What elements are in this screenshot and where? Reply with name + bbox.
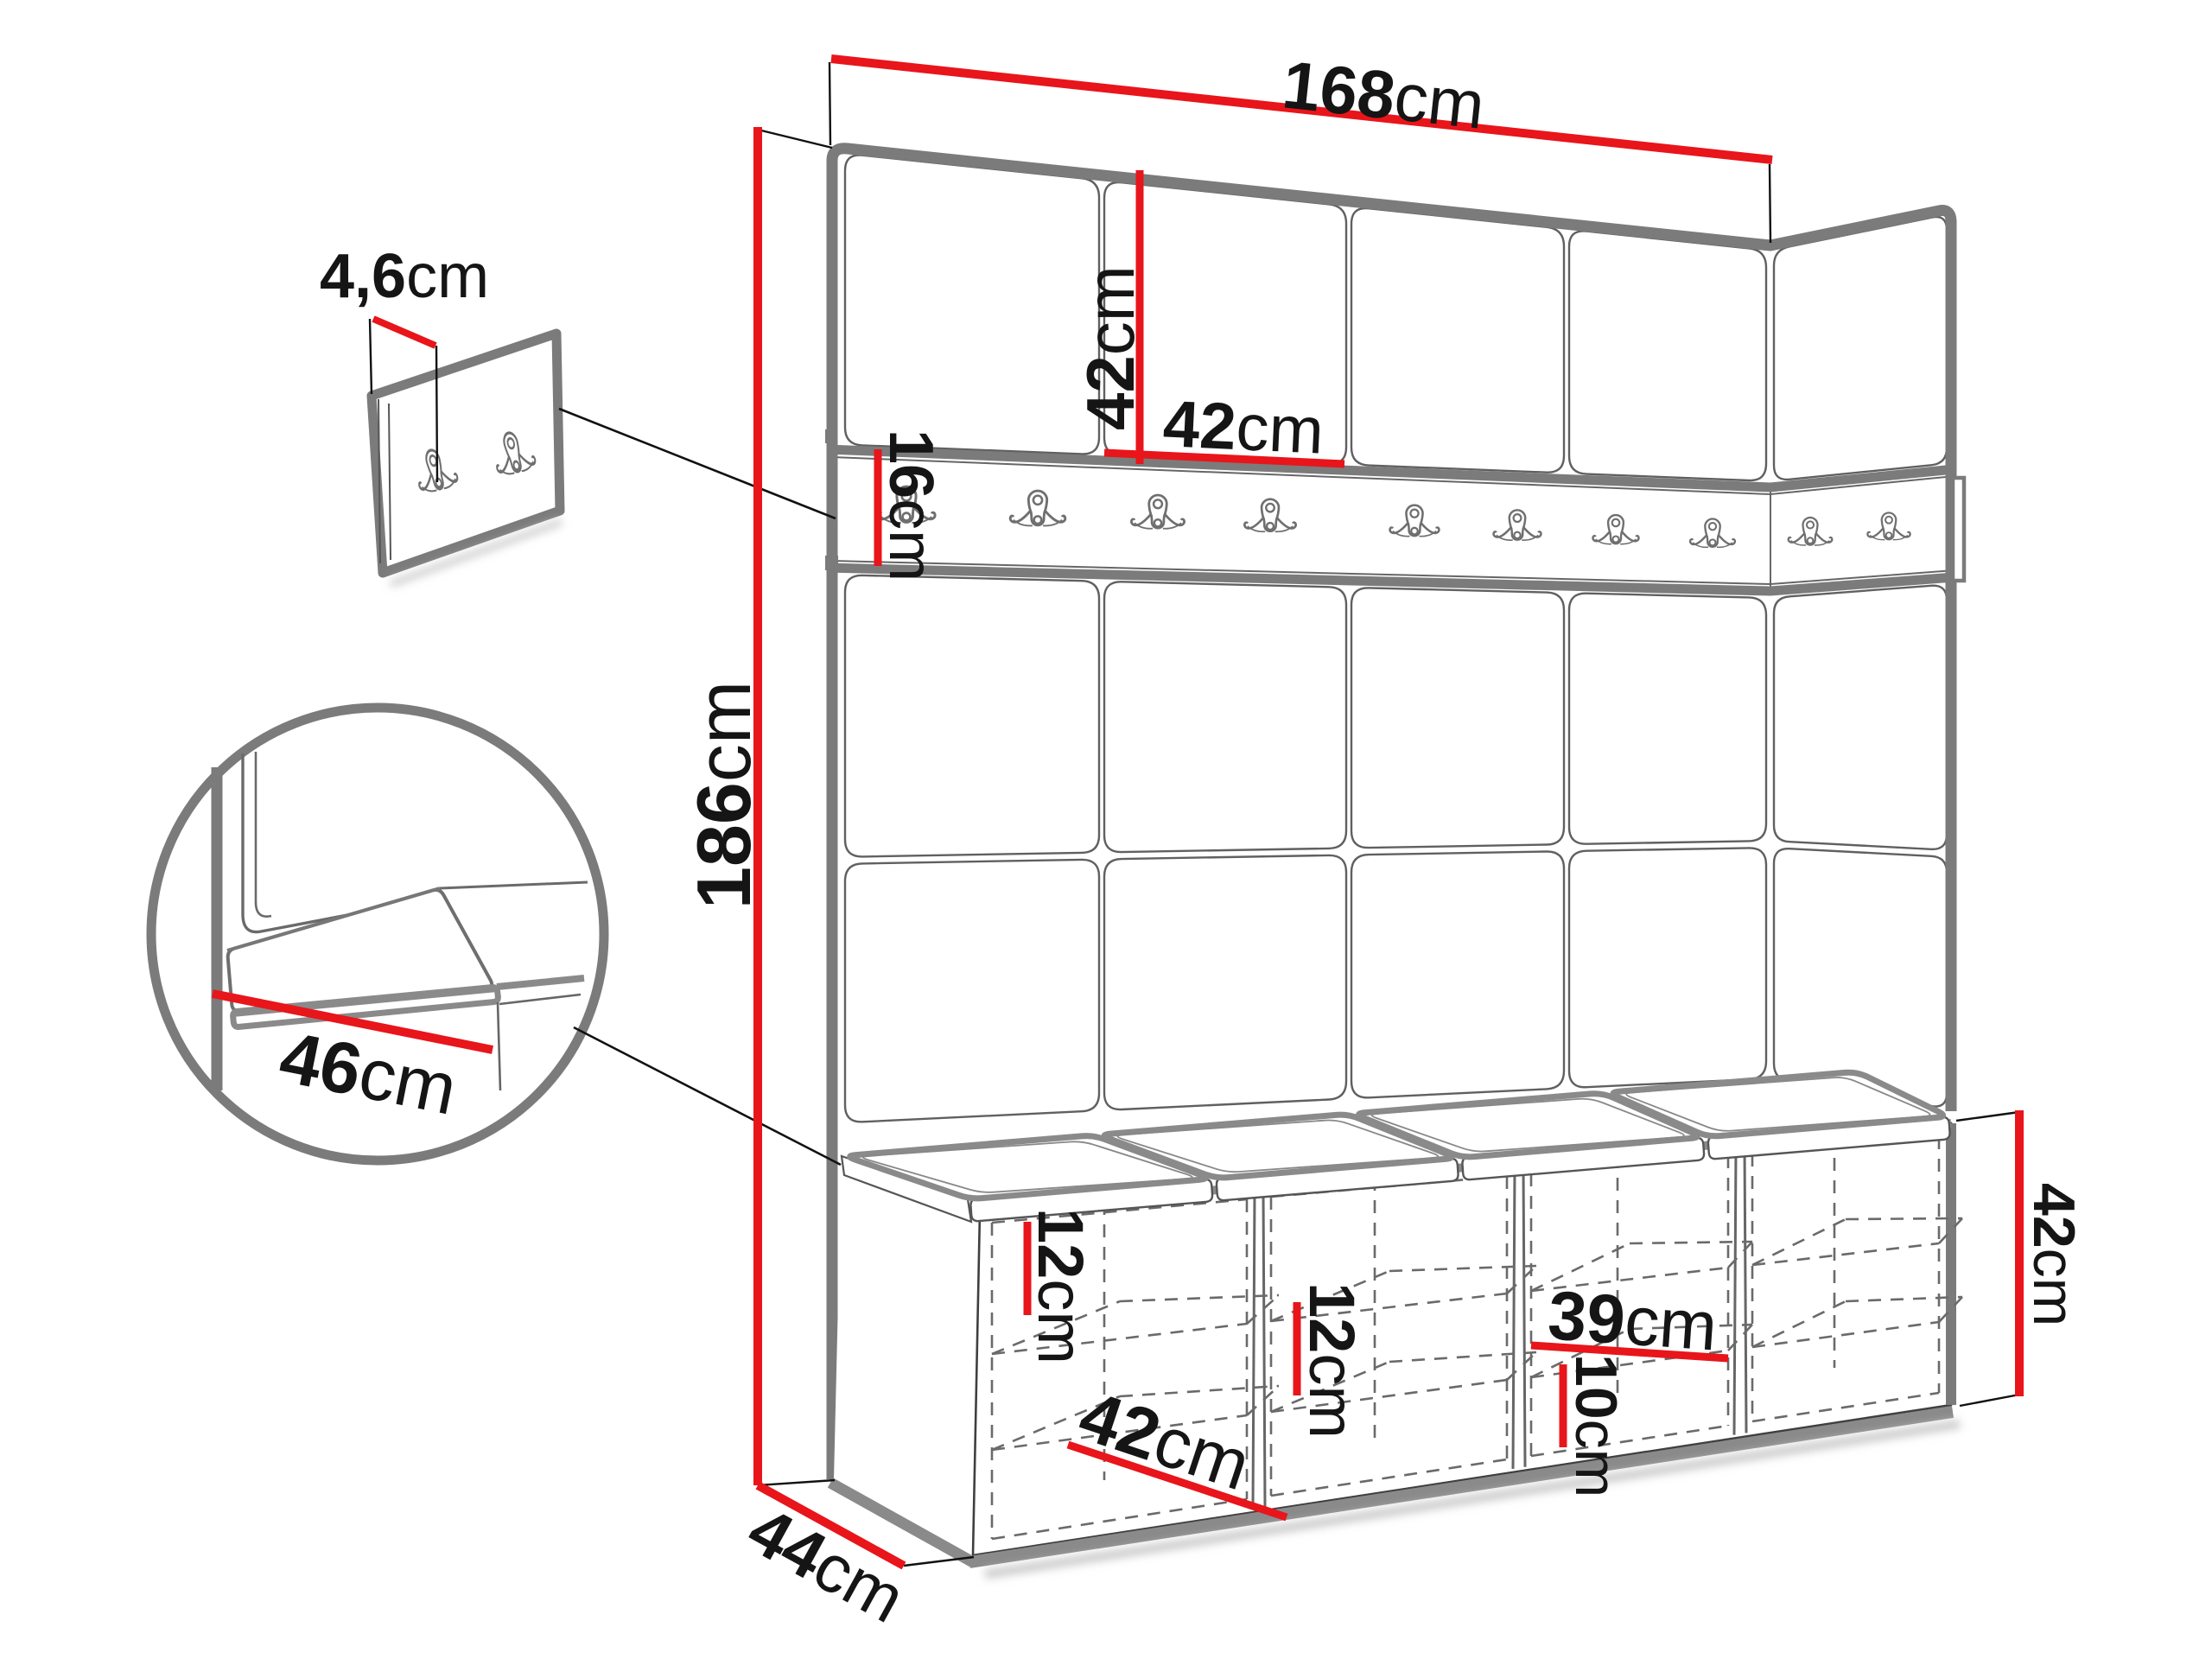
svg-text:39cm: 39cm [1546,1276,1719,1364]
svg-text:10cm: 10cm [1563,1354,1629,1497]
svg-text:42cm: 42cm [1072,265,1148,430]
svg-text:12cm: 12cm [1025,1208,1096,1364]
svg-text:4,6cm: 4,6cm [320,242,489,311]
svg-text:186cm: 186cm [681,681,766,909]
svg-text:42cm: 42cm [1161,387,1325,468]
svg-text:12cm: 12cm [1296,1282,1368,1439]
svg-text:42cm: 42cm [2021,1183,2087,1326]
svg-text:16cm: 16cm [876,429,945,582]
